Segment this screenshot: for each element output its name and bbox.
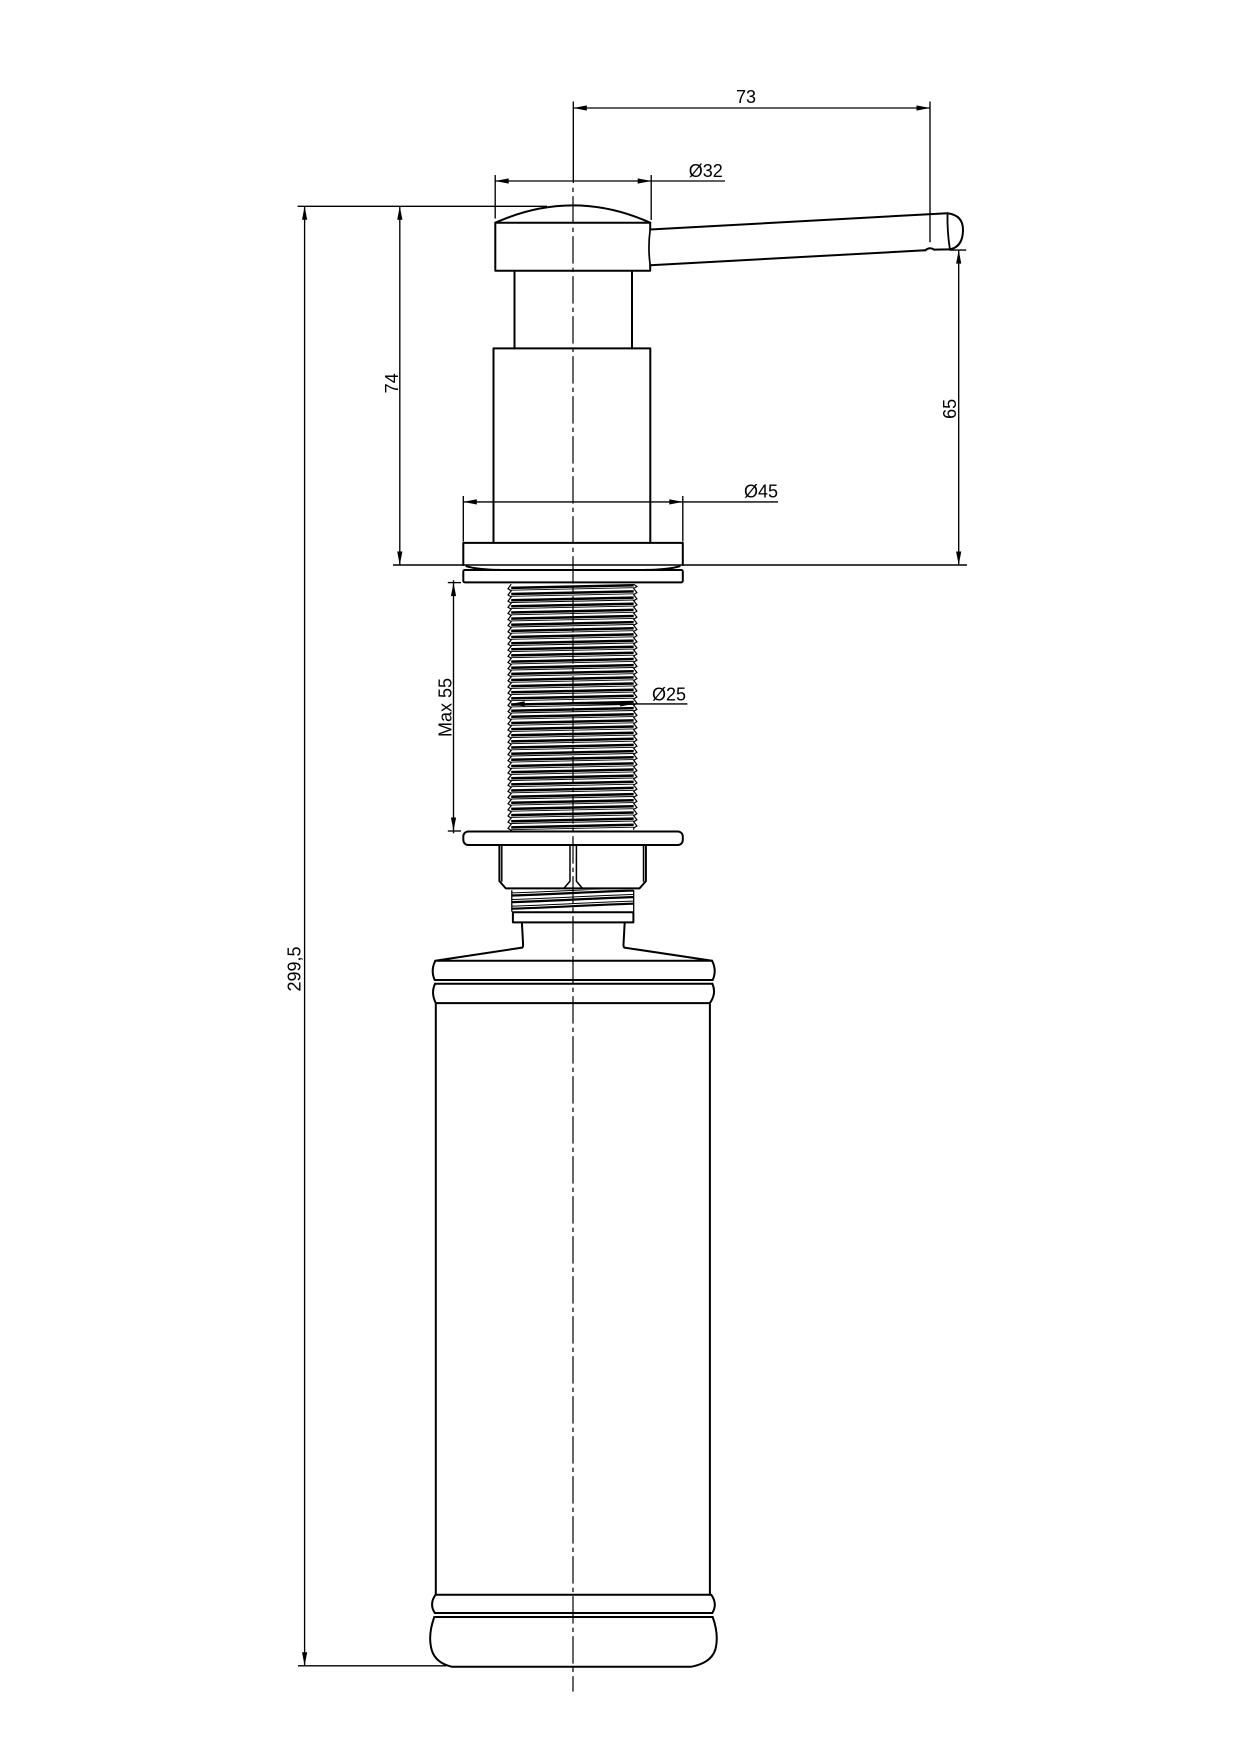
svg-text:65: 65 — [940, 399, 960, 419]
svg-text:73: 73 — [736, 87, 756, 107]
svg-text:Ø32: Ø32 — [689, 161, 723, 181]
svg-text:299,5: 299,5 — [284, 946, 304, 991]
svg-text:Ø25: Ø25 — [652, 684, 686, 704]
svg-text:Ø45: Ø45 — [744, 482, 778, 502]
svg-text:Max 55: Max 55 — [435, 678, 455, 737]
svg-text:74: 74 — [382, 373, 402, 393]
